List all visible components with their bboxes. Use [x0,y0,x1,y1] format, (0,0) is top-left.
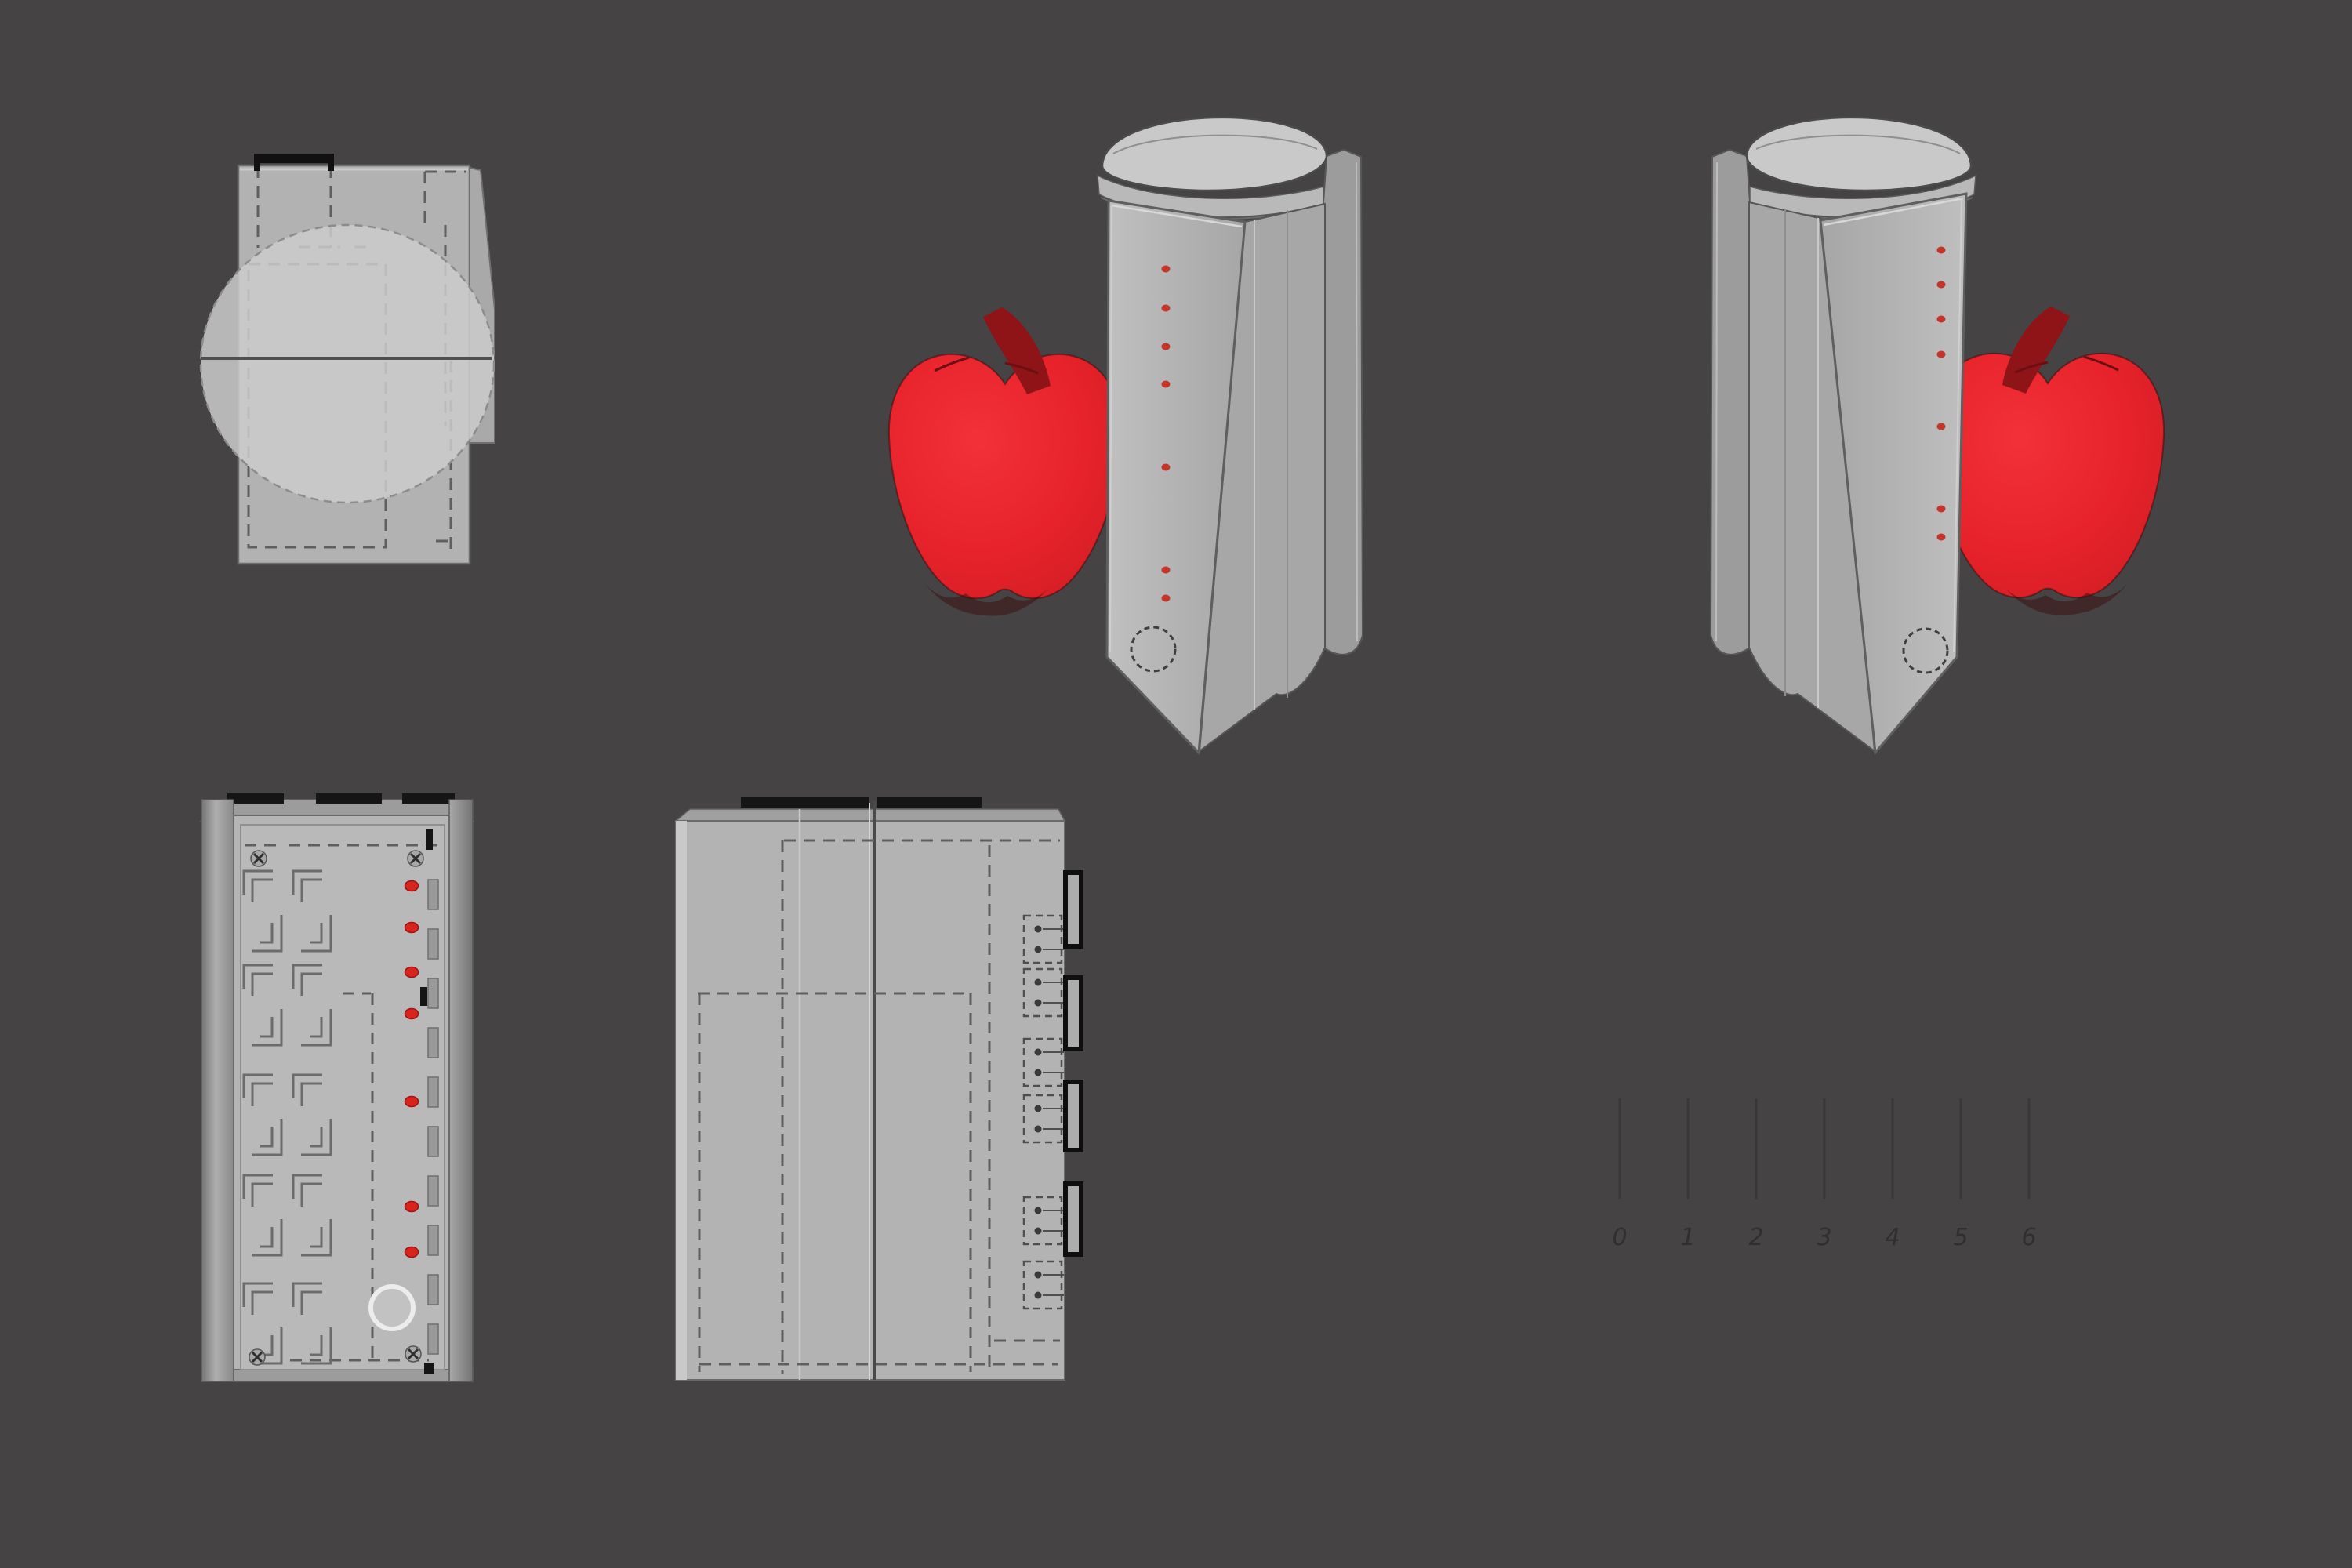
ruler-label: 2 [1748,1224,1763,1251]
blade-edge-top [227,793,455,804]
ruler-label: 5 [1953,1224,1968,1251]
led-dot [405,1247,419,1258]
screw-icon [251,851,267,866]
led-dot [405,1202,419,1212]
latch-pin [1035,1272,1042,1279]
latch-pin [1035,1000,1042,1007]
front-view [201,793,473,1381]
vent-slot [428,1324,438,1354]
ruler-label: 4 [1885,1224,1900,1251]
led-dot [1937,423,1946,430]
led-dot [1937,281,1946,289]
led-dot [1937,247,1946,254]
latch-tick [420,987,427,1006]
led-dot [1162,595,1171,602]
led-dot [1162,266,1171,273]
led-dot [405,1097,419,1107]
screw-icon [408,851,423,866]
screw-icon [249,1349,265,1365]
led-dot [1162,381,1171,388]
latch-tick [424,1363,434,1374]
led-dot [1162,305,1171,312]
front-left-strip [201,800,234,1381]
led-dot [1162,464,1171,471]
apple-section-circle [201,225,494,503]
latch-pin [1035,1049,1042,1056]
vent-slot [428,880,438,909]
ruler-label: 3 [1817,1224,1831,1251]
screw-icon [405,1346,421,1362]
led-dot [405,967,419,978]
latch-pin [1035,1292,1042,1299]
front-right-strip [449,800,473,1381]
latch-pin [1035,946,1042,953]
side-view [676,797,1081,1380]
latch-tick [426,829,433,850]
led-dot [405,923,419,933]
mount-bracket [1065,1082,1081,1150]
ruler-label: 0 [1612,1224,1627,1251]
apple-body [1932,354,2164,597]
side-left-highlight [676,821,687,1380]
device-rear-highlight [1356,162,1357,641]
blade-edge-top [741,797,982,808]
led-dot [1937,351,1946,358]
latch-pin [1035,1105,1042,1112]
power-button [371,1287,413,1329]
led-dot [1937,316,1946,323]
vent-slot [428,1028,438,1058]
vent-slot [428,1275,438,1305]
mount-bracket [1065,978,1081,1049]
mount-bracket [1065,1184,1081,1254]
led-dot [1162,343,1171,350]
vent-slot [428,1176,438,1206]
led-dot [405,1009,419,1019]
vent-slot [428,978,438,1008]
led-dot [1937,506,1946,513]
top-view [201,154,495,564]
design-sheet: 0123456 [0,0,2352,1568]
vent-slot [428,929,438,959]
device-rear-highlight [1716,162,1717,641]
vent-slot [428,1127,438,1156]
latch-pin [1035,1228,1042,1235]
latch-pin [1035,1069,1042,1076]
latch-pin [1035,926,1042,933]
led-dot [1162,567,1171,574]
led-dot [405,881,419,891]
ruler-label: 1 [1680,1224,1695,1251]
vent-slot [428,1225,438,1255]
apple-body [889,354,1121,598]
latch-pin [1035,979,1042,986]
led-dot [1937,534,1946,541]
latch-pin [1035,1207,1042,1214]
ruler-label: 6 [2021,1224,2036,1251]
latch-pin [1035,1126,1042,1133]
mount-bracket [1065,873,1081,946]
vent-slot [428,1077,438,1107]
